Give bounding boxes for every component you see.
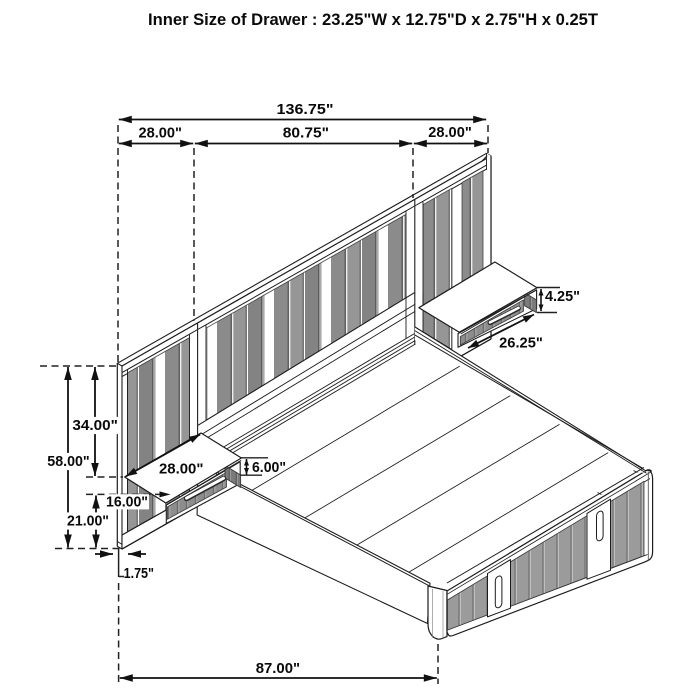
svg-text:28.00": 28.00"	[138, 124, 182, 141]
svg-text:21.00": 21.00"	[67, 513, 109, 530]
svg-text:87.00": 87.00"	[256, 660, 300, 677]
svg-text:1.75": 1.75"	[124, 565, 154, 582]
svg-text:Inner Size of Drawer : 23.25"W: Inner Size of Drawer : 23.25"W x 12.75"D…	[148, 10, 598, 29]
svg-text:34.00": 34.00"	[72, 417, 118, 434]
svg-text:6.00": 6.00"	[252, 459, 286, 476]
svg-text:16.00": 16.00"	[106, 493, 148, 510]
svg-text:136.75": 136.75"	[277, 101, 334, 118]
svg-text:28.00": 28.00"	[159, 461, 204, 478]
svg-text:26.25": 26.25"	[499, 335, 543, 352]
svg-text:28.00": 28.00"	[428, 124, 472, 141]
svg-text:80.75": 80.75"	[283, 124, 329, 141]
svg-text:4.25": 4.25"	[545, 288, 580, 305]
svg-text:58.00": 58.00"	[47, 453, 89, 470]
